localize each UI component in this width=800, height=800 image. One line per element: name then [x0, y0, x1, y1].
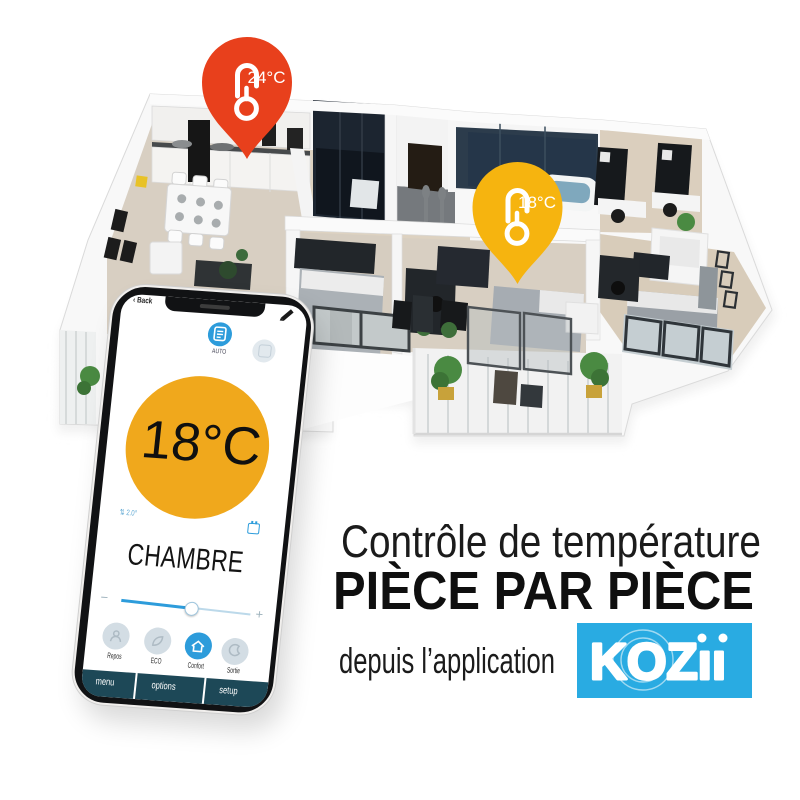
- svg-text:18°C: 18°C: [518, 193, 556, 212]
- svg-text:24°C: 24°C: [248, 68, 286, 87]
